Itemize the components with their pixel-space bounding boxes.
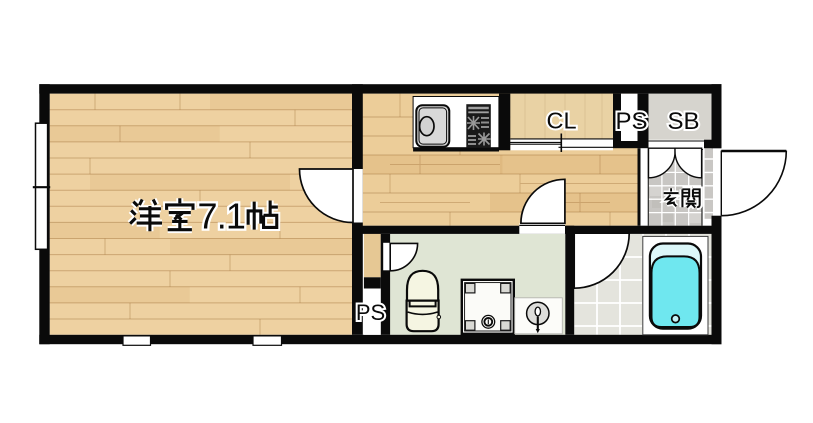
svg-text:SB: SB (667, 108, 699, 135)
svg-text:PS: PS (615, 108, 647, 135)
svg-text:7.1: 7.1 (198, 196, 246, 237)
svg-text:CL: CL (546, 107, 576, 133)
svg-text:PS: PS (356, 300, 385, 325)
